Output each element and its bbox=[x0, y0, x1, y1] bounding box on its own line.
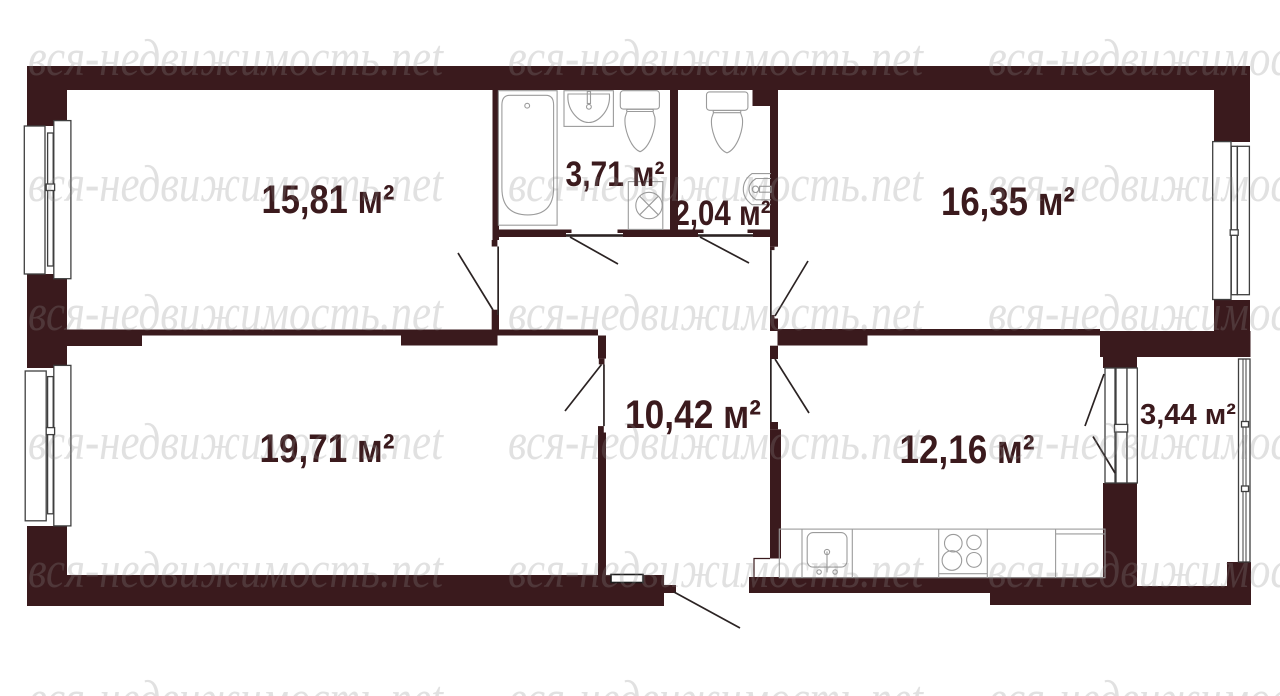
svg-text:вся-недвижимость.net: вся-недвижимость.net bbox=[28, 156, 444, 213]
svg-text:вся-недвижимость.net: вся-недвижимость.net bbox=[28, 30, 444, 87]
svg-text:вся-недвижимость.net: вся-недвижимость.net bbox=[28, 414, 444, 471]
svg-text:вся-недвижимость.net: вся-недвижимость.net bbox=[508, 671, 924, 696]
svg-text:вся-недвижимость.net: вся-недвижимость.net bbox=[988, 542, 1280, 599]
svg-text:вся-недвижимость.net: вся-недвижимость.net bbox=[988, 671, 1280, 696]
svg-text:вся-недвижимость.net: вся-недвижимость.net bbox=[508, 285, 924, 342]
svg-text:вся-недвижимость.net: вся-недвижимость.net bbox=[508, 30, 924, 87]
svg-text:вся-недвижимость.net: вся-недвижимость.net bbox=[28, 542, 444, 599]
svg-text:вся-недвижимость.net: вся-недвижимость.net bbox=[988, 285, 1280, 342]
svg-text:вся-недвижимость.net: вся-недвижимость.net bbox=[28, 671, 444, 696]
svg-text:вся-недвижимость.net: вся-недвижимость.net bbox=[988, 30, 1280, 87]
svg-text:вся-недвижимость.net: вся-недвижимость.net bbox=[988, 414, 1280, 471]
svg-text:вся-недвижимость.net: вся-недвижимость.net bbox=[28, 285, 444, 342]
svg-text:вся-недвижимость.net: вся-недвижимость.net bbox=[988, 156, 1280, 213]
svg-text:вся-недвижимость.net: вся-недвижимость.net bbox=[508, 156, 924, 213]
svg-text:вся-недвижимость.net: вся-недвижимость.net bbox=[508, 542, 924, 599]
svg-text:вся-недвижимость.net: вся-недвижимость.net bbox=[508, 414, 924, 471]
